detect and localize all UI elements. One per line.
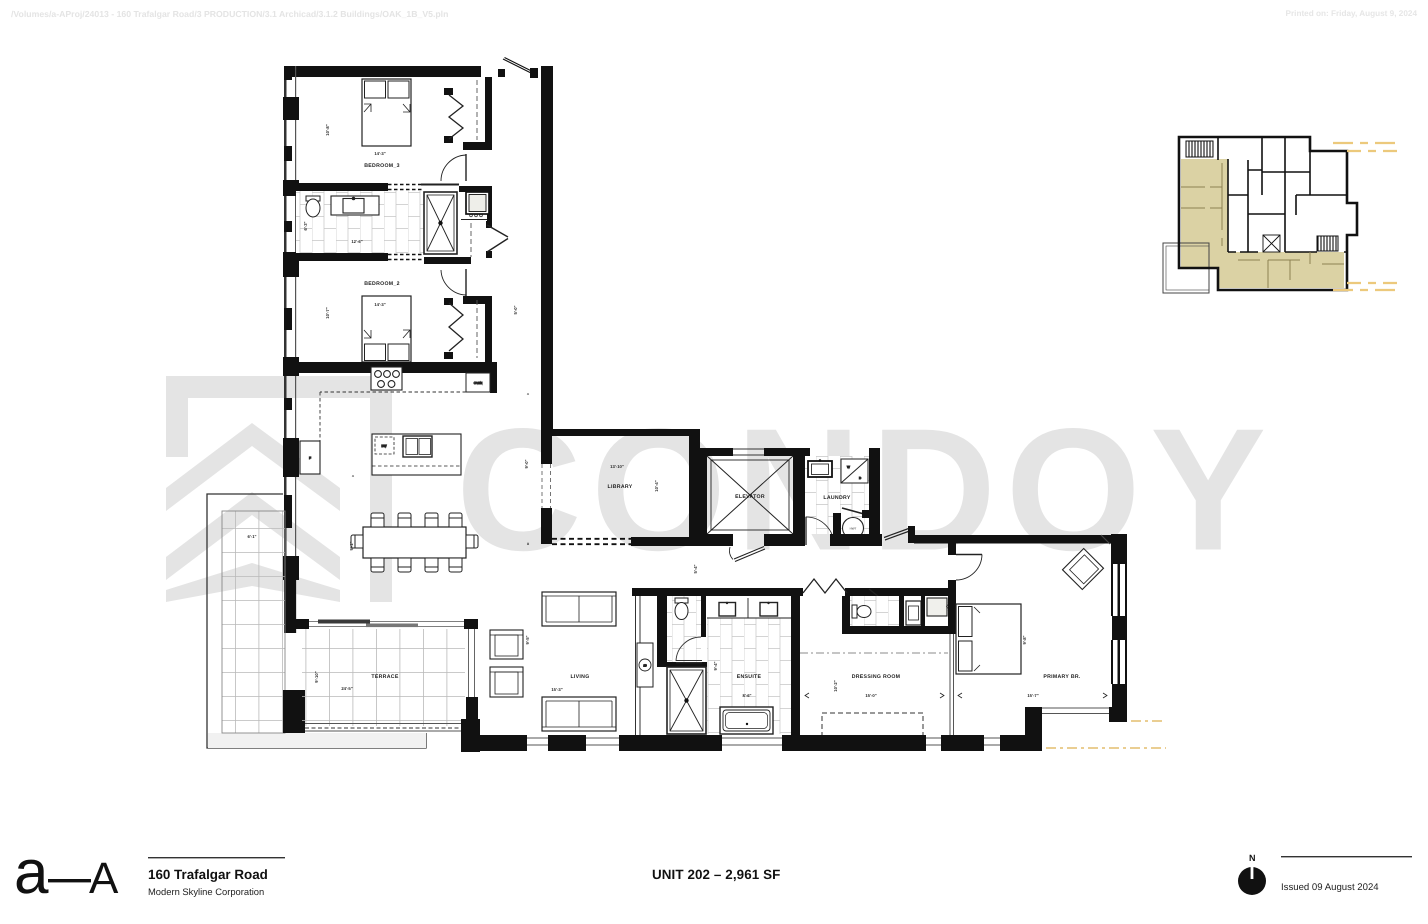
svg-text:BEDROOM_2: BEDROOM_2 bbox=[364, 281, 400, 287]
svg-text:160 Trafalgar Road: 160 Trafalgar Road bbox=[148, 867, 268, 882]
svg-text:10'-4": 10'-4" bbox=[654, 480, 659, 491]
svg-text:BEDROOM_3: BEDROOM_3 bbox=[364, 163, 400, 169]
svg-text:5'-4": 5'-4" bbox=[693, 564, 698, 573]
svg-text:ENSUITE: ENSUITE bbox=[737, 674, 762, 680]
svg-text:LIVING: LIVING bbox=[570, 674, 589, 680]
svg-text:DRESSING ROOM: DRESSING ROOM bbox=[852, 674, 901, 680]
svg-text:15'-0": 15'-0" bbox=[865, 693, 876, 698]
svg-text:DW: DW bbox=[382, 444, 387, 448]
svg-text:LIBRARY: LIBRARY bbox=[608, 484, 633, 490]
svg-text:Issued 09 August 2024: Issued 09 August 2024 bbox=[1281, 882, 1379, 893]
svg-text:N: N bbox=[1249, 853, 1256, 863]
svg-text:15'-7": 15'-7" bbox=[1027, 693, 1038, 698]
svg-text:LAUNDRY: LAUNDRY bbox=[823, 495, 851, 501]
svg-text:14'-3": 14'-3" bbox=[374, 302, 385, 307]
svg-text:10'-7": 10'-7" bbox=[325, 307, 330, 318]
svg-text:6'-3": 6'-3" bbox=[303, 221, 308, 230]
svg-text:10'-2": 10'-2" bbox=[833, 680, 838, 691]
svg-text:A: A bbox=[89, 854, 119, 903]
svg-text:6'-1": 6'-1" bbox=[247, 534, 256, 539]
svg-text:ELEVATOR: ELEVATOR bbox=[735, 494, 765, 500]
svg-text:PRIMARY BR.: PRIMARY BR. bbox=[1043, 674, 1081, 680]
svg-text:a: a bbox=[14, 838, 49, 907]
svg-text:14'-3": 14'-3" bbox=[374, 151, 385, 156]
svg-text:9'-1": 9'-1" bbox=[349, 541, 354, 550]
svg-text:W: W bbox=[847, 465, 850, 469]
svg-text:UNIT 202 – 2,961 SF: UNIT 202 – 2,961 SF bbox=[652, 867, 780, 882]
svg-text:9'-4": 9'-4" bbox=[713, 661, 718, 670]
svg-text:9'-8": 9'-8" bbox=[1022, 635, 1027, 644]
svg-text:9'-5": 9'-5" bbox=[525, 635, 530, 644]
svg-text:OVEN: OVEN bbox=[474, 381, 483, 385]
svg-text:TERRACE: TERRACE bbox=[371, 674, 398, 680]
svg-text:15'-3": 15'-3" bbox=[551, 687, 562, 692]
svg-text:12'-6": 12'-6" bbox=[351, 239, 362, 244]
svg-text:Modern Skyline Corporation: Modern Skyline Corporation bbox=[148, 886, 264, 897]
svg-text:24'-5": 24'-5" bbox=[341, 686, 352, 691]
svg-text:5'-0": 5'-0" bbox=[513, 305, 518, 314]
svg-text:/Volumes/a-AProj/24013 - 160 T: /Volumes/a-AProj/24013 - 160 Trafalgar R… bbox=[11, 9, 448, 19]
svg-text:Printed on: Friday, August 9,: Printed on: Friday, August 9, 2024 bbox=[1286, 9, 1418, 18]
svg-text:19: 19 bbox=[643, 664, 647, 668]
svg-text:F: F bbox=[309, 456, 311, 460]
svg-text:13'-10": 13'-10" bbox=[610, 464, 624, 469]
svg-text:9'-0": 9'-0" bbox=[524, 459, 529, 468]
svg-text:10'-8": 10'-8" bbox=[325, 124, 330, 135]
svg-text:8'-6": 8'-6" bbox=[742, 693, 751, 698]
svg-text:HWT: HWT bbox=[850, 527, 857, 531]
svg-text:9'-10": 9'-10" bbox=[314, 671, 319, 682]
